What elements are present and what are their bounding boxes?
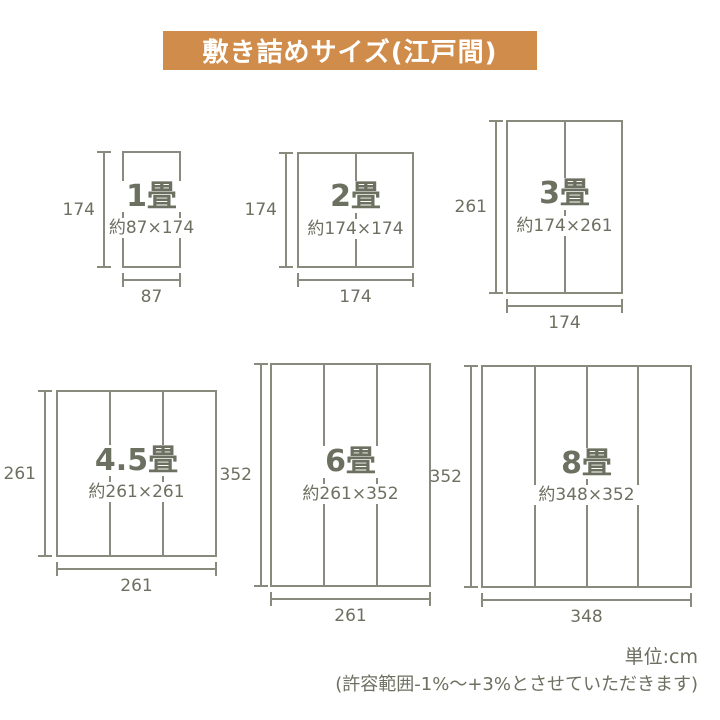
tatami-labels: 1畳 約87×174 (122, 151, 181, 268)
diagram-6jo: 352 6畳 約261×352 261 (270, 363, 431, 587)
width-dimension: 174 (297, 287, 414, 307)
tatami-labels: 2畳 約174×174 (297, 152, 414, 268)
infographic-canvas: 敷き詰めサイズ(江戸間) 174 1畳 約87×174 87 174 2畳 約1… (0, 0, 720, 720)
unit-note: 単位:cm (335, 645, 698, 670)
tatami-size-label: 約87×174 (105, 218, 198, 238)
width-measure-line (122, 279, 181, 281)
height-measure-line (285, 152, 287, 268)
tatami-labels: 8畳 約348×352 (481, 365, 692, 588)
tatami-labels: 3畳 約174×261 (506, 120, 623, 294)
footer-notes: 単位:cm (許容範囲-1%〜+3%とさせていただきます) (335, 645, 698, 696)
tatami-count-label: 6畳 (320, 446, 381, 478)
width-measure-line (506, 305, 623, 307)
tatami-size-label: 約174×174 (303, 219, 407, 239)
height-dimension: 174 (63, 200, 95, 220)
width-measure-line (297, 279, 414, 281)
tatami-count-label: 3畳 (534, 178, 595, 210)
height-measure-line (495, 120, 497, 294)
height-dimension: 261 (4, 464, 36, 484)
height-dimension: 174 (245, 200, 277, 220)
width-dimension: 261 (56, 576, 217, 596)
height-dimension: 261 (455, 197, 487, 217)
tatami-count-label: 4.5畳 (90, 445, 183, 477)
height-measure-line (44, 390, 46, 557)
height-dimension: 352 (430, 467, 462, 487)
tolerance-note: (許容範囲-1%〜+3%とさせていただきます) (335, 673, 698, 696)
tatami-size-label: 約261×352 (298, 484, 402, 504)
diagram-8jo: 352 8畳 約348×352 348 (481, 365, 692, 588)
diagram-2jo: 174 2畳 約174×174 174 (297, 152, 414, 268)
diagram-4-5jo: 261 4.5畳 約261×261 261 (56, 390, 217, 557)
tatami-count-label: 8畳 (556, 448, 617, 480)
title-banner: 敷き詰めサイズ(江戸間) (163, 31, 537, 70)
height-dimension: 352 (220, 465, 252, 485)
width-dimension: 87 (122, 287, 181, 307)
tatami-labels: 6畳 約261×352 (270, 363, 431, 587)
tatami-count-label: 1畳 (121, 181, 182, 213)
height-measure-line (470, 365, 472, 588)
page-title: 敷き詰めサイズ(江戸間) (203, 32, 498, 69)
width-measure-line (481, 599, 692, 601)
width-dimension: 261 (270, 606, 431, 626)
tatami-size-label: 約174×261 (512, 216, 616, 236)
width-measure-line (56, 568, 217, 570)
diagram-1jo: 174 1畳 約87×174 87 (122, 151, 181, 268)
width-dimension: 348 (481, 607, 692, 627)
tatami-size-label: 約261×261 (84, 482, 188, 502)
diagram-3jo: 261 3畳 約174×261 174 (506, 120, 623, 294)
width-measure-line (270, 598, 431, 600)
tatami-count-label: 2畳 (325, 181, 386, 213)
tatami-labels: 4.5畳 約261×261 (56, 390, 217, 557)
height-measure-line (260, 363, 262, 587)
tatami-size-label: 約348×352 (534, 485, 638, 505)
width-dimension: 174 (506, 313, 623, 333)
height-measure-line (103, 151, 105, 268)
